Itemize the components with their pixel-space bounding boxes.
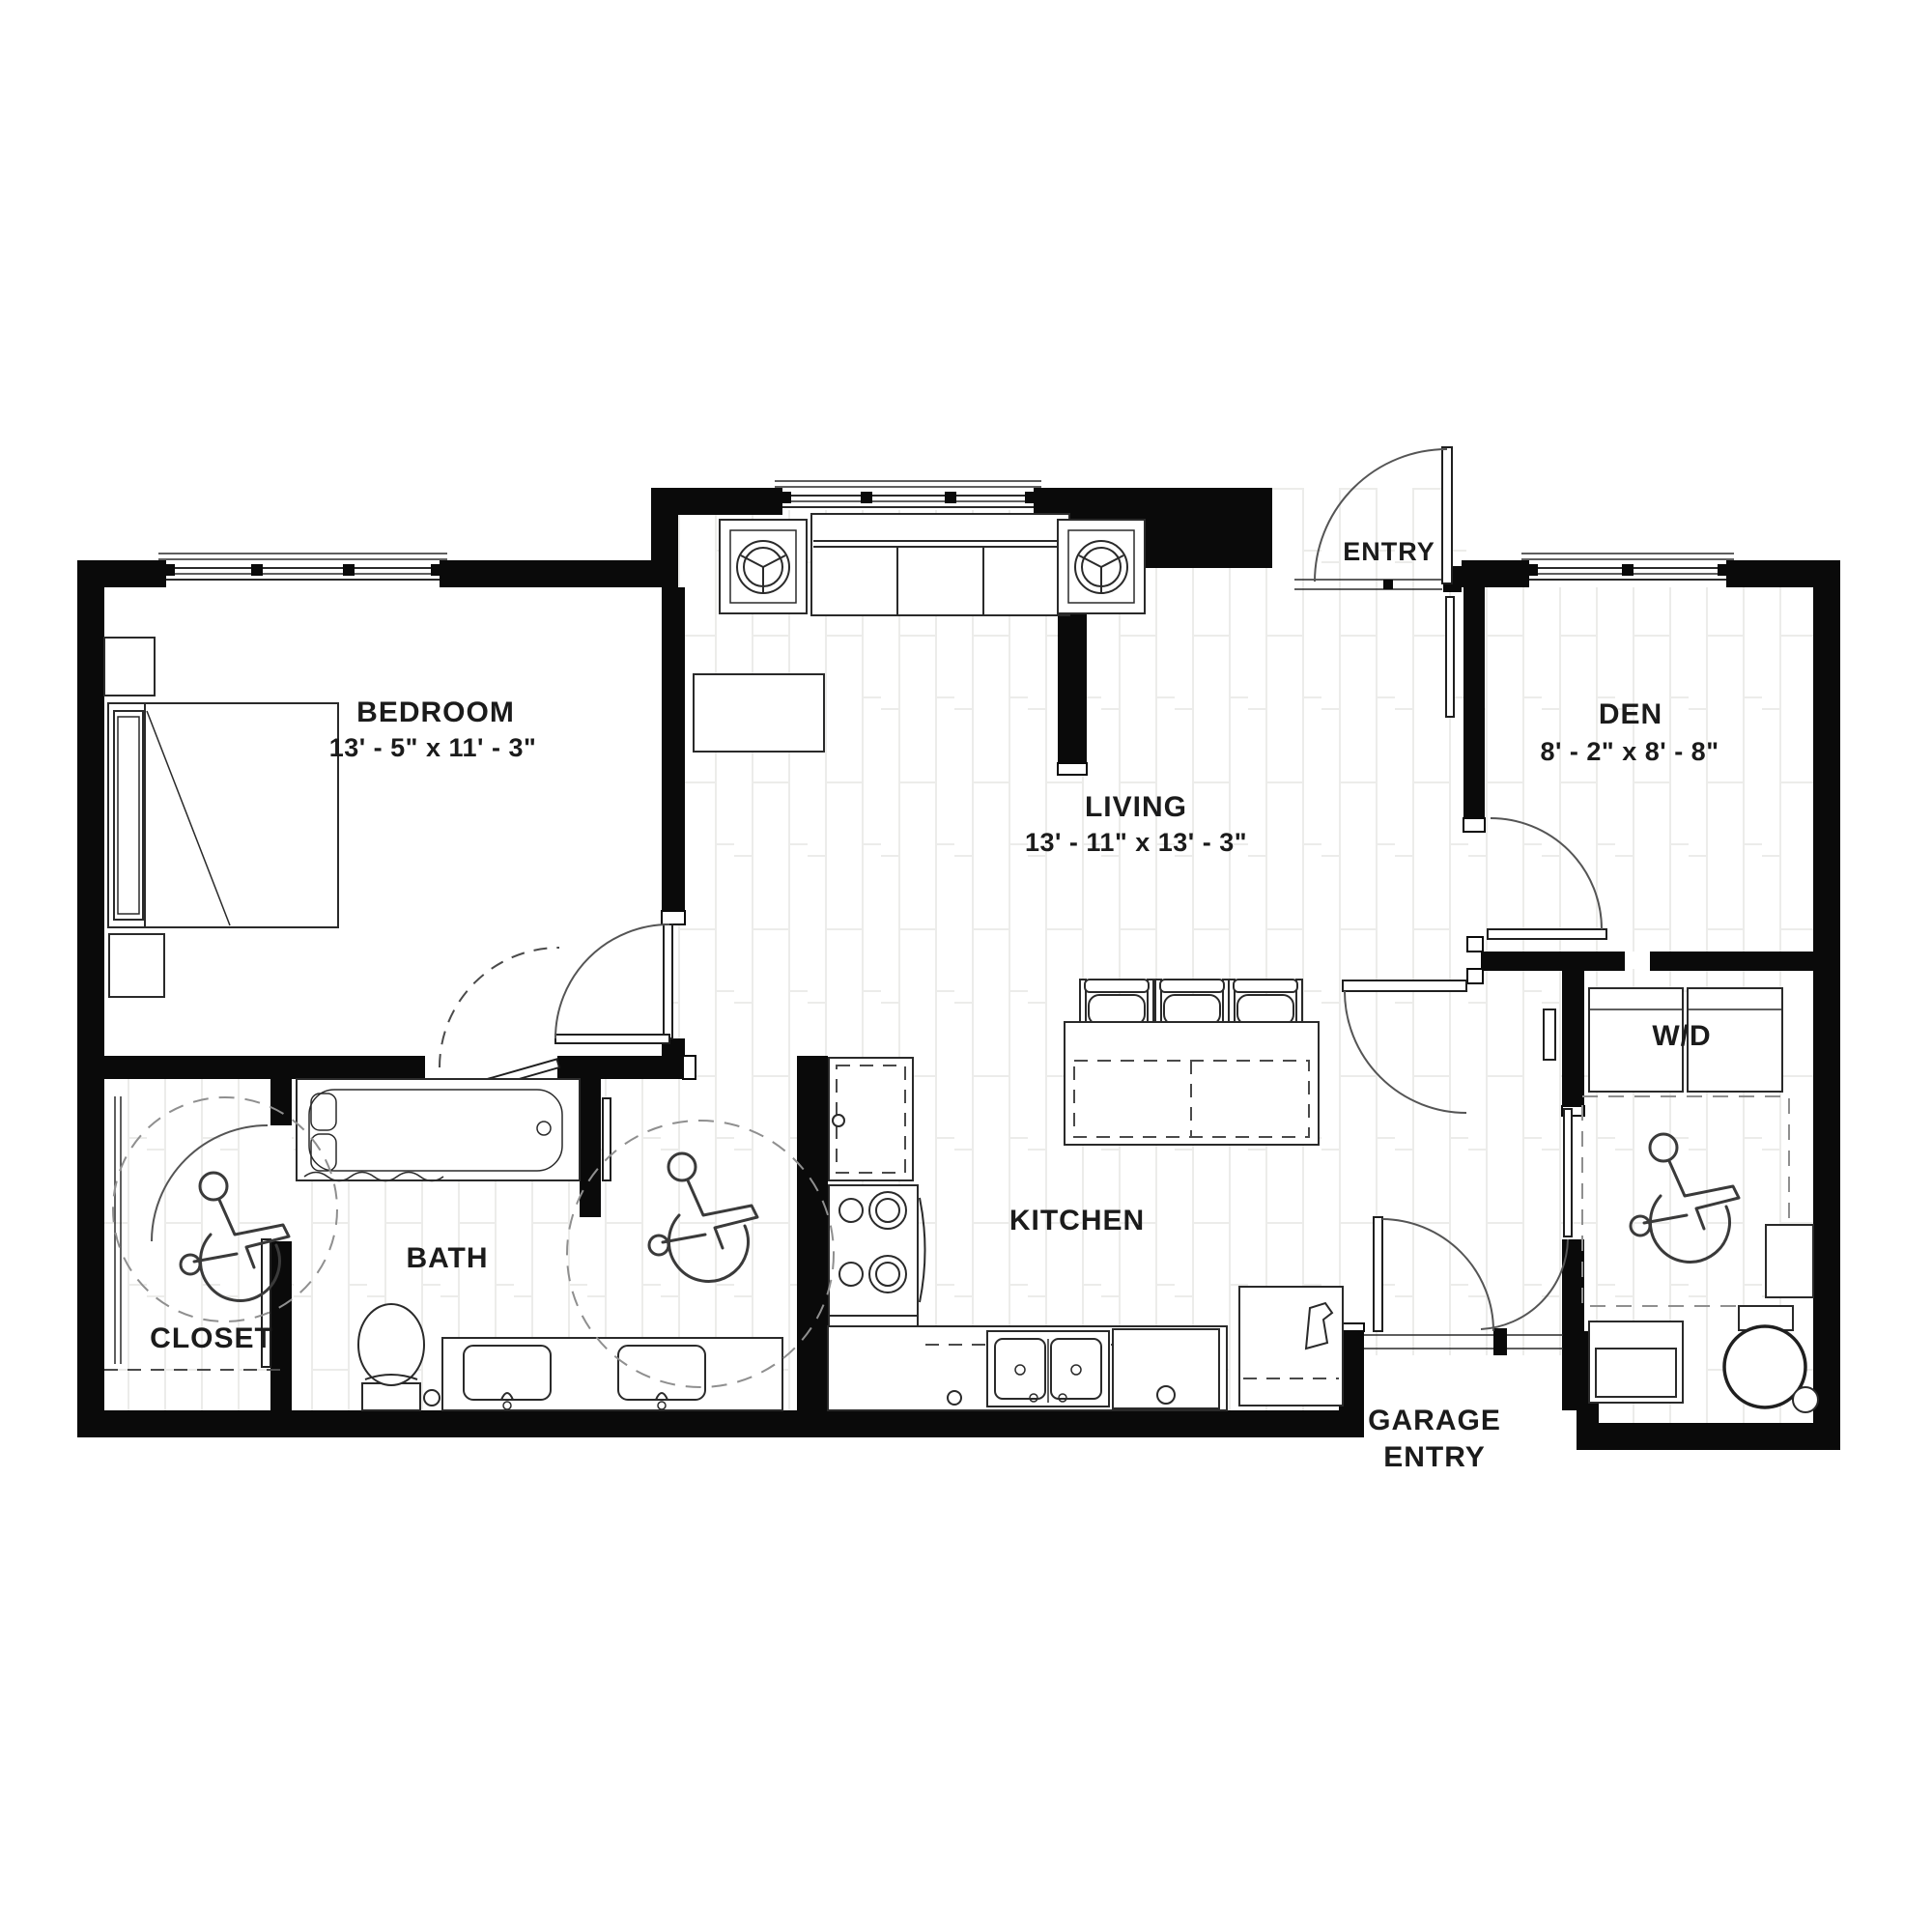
bath-door (440, 948, 559, 1100)
coat-closet-shelf (1544, 1009, 1555, 1060)
closet-floor (101, 1079, 270, 1410)
kitchen-label: KITCHEN (1009, 1205, 1145, 1236)
floor-plan-page: BEDROOM 13' - 5" x 11' - 3" LIVING 13' -… (0, 0, 1932, 1932)
entry-label: ENTRY (1343, 537, 1435, 566)
bed (108, 703, 338, 927)
floor-plan-drawing: BEDROOM 13' - 5" x 11' - 3" LIVING 13' -… (0, 0, 1932, 1932)
closet-label: CLOSET (150, 1322, 273, 1354)
dishwasher (1113, 1329, 1219, 1408)
coffee-table (694, 674, 824, 752)
floor-areas (101, 488, 1813, 1462)
utility-box (1589, 1321, 1683, 1403)
bedroom-dims: 13' - 5" x 11' - 3" (329, 733, 537, 762)
laundry-label: W/D (1652, 1020, 1711, 1052)
bedroom-furniture (104, 638, 338, 997)
bath-label: BATH (406, 1242, 488, 1274)
bathtub (297, 1079, 580, 1181)
den-window (1521, 554, 1734, 580)
den-label: DEN (1599, 698, 1662, 730)
side-table (1058, 520, 1145, 613)
sofa (811, 514, 1069, 615)
range-stove (829, 1185, 925, 1316)
stool (1229, 980, 1302, 1025)
bedroom-window (158, 554, 447, 580)
side-table (720, 520, 807, 613)
refrigerator (1239, 1287, 1343, 1406)
stool (1155, 980, 1229, 1025)
garage-entry-label-line1: GARAGE (1368, 1405, 1501, 1436)
nightstand (104, 638, 155, 696)
bedroom-label: BEDROOM (356, 696, 515, 728)
den-dims: 8' - 2" x 8' - 8" (1540, 737, 1719, 766)
entry-panel (1446, 597, 1454, 717)
bedroom-door (555, 924, 672, 1043)
living-window (775, 481, 1041, 507)
living-label: LIVING (1085, 791, 1187, 823)
living-dims: 13' - 11" x 13' - 3" (1025, 828, 1247, 857)
shelf (1766, 1225, 1813, 1297)
kitchen-sink (987, 1331, 1109, 1406)
shower-door (603, 1098, 611, 1180)
nightstand (109, 934, 164, 997)
vanity-double-sink (442, 1338, 782, 1410)
dining-island (1065, 980, 1319, 1145)
stool (1080, 980, 1153, 1025)
pantry-cabinet (829, 1058, 913, 1180)
garage-entry-label-line2: ENTRY (1383, 1441, 1486, 1473)
